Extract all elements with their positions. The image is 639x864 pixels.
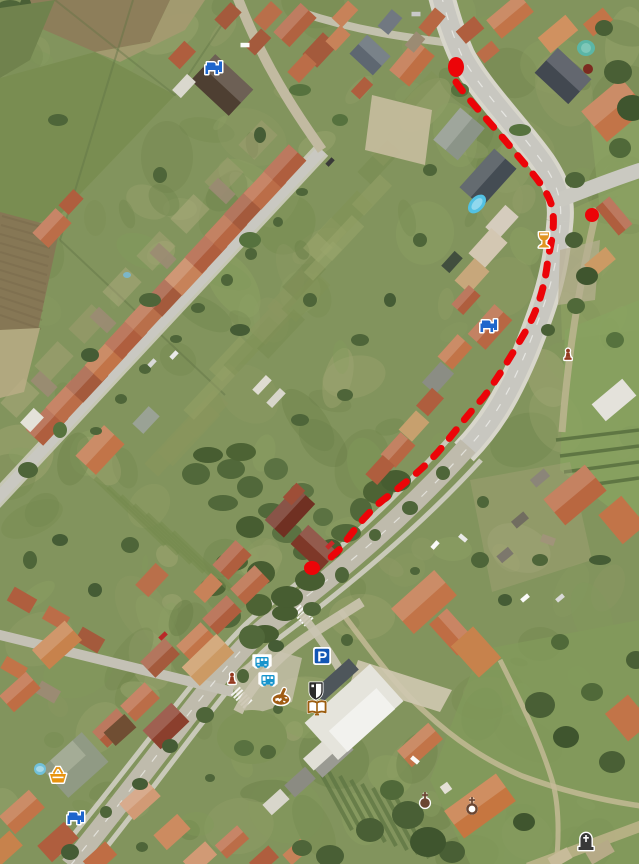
svg-text:P: P <box>317 648 327 665</box>
